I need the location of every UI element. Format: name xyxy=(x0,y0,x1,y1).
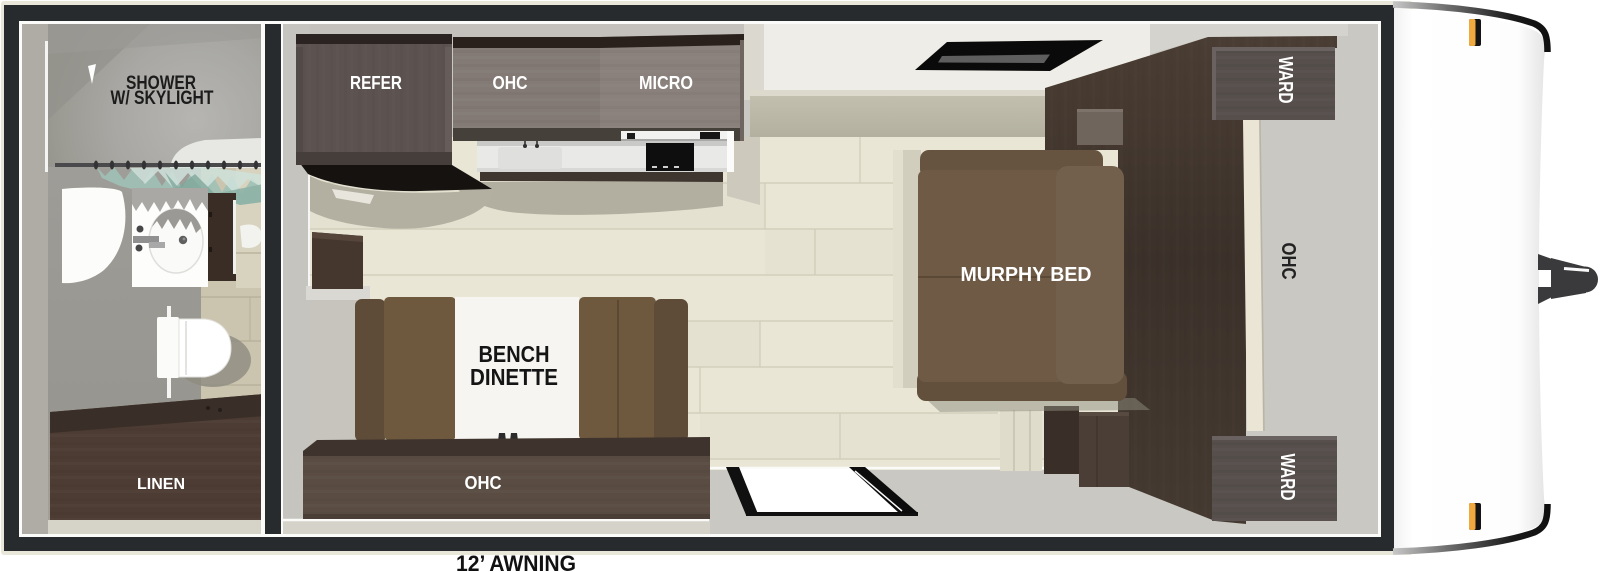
svg-text:DINETTE: DINETTE xyxy=(470,364,558,390)
svg-text:LINEN: LINEN xyxy=(137,476,185,493)
svg-text:12’ AWNING: 12’ AWNING xyxy=(456,551,576,572)
svg-text:OHC: OHC xyxy=(493,73,528,93)
svg-text:WARD: WARD xyxy=(1274,57,1296,104)
svg-text:OHC: OHC xyxy=(465,473,502,493)
svg-text:W/ SKYLIGHT: W/ SKYLIGHT xyxy=(111,88,214,109)
svg-text:MICRO: MICRO xyxy=(639,73,693,93)
svg-text:WARD: WARD xyxy=(1276,454,1298,501)
svg-text:OHC: OHC xyxy=(1277,243,1299,280)
svg-text:REFER: REFER xyxy=(350,73,402,93)
svg-text:MURPHY BED: MURPHY BED xyxy=(961,264,1092,286)
